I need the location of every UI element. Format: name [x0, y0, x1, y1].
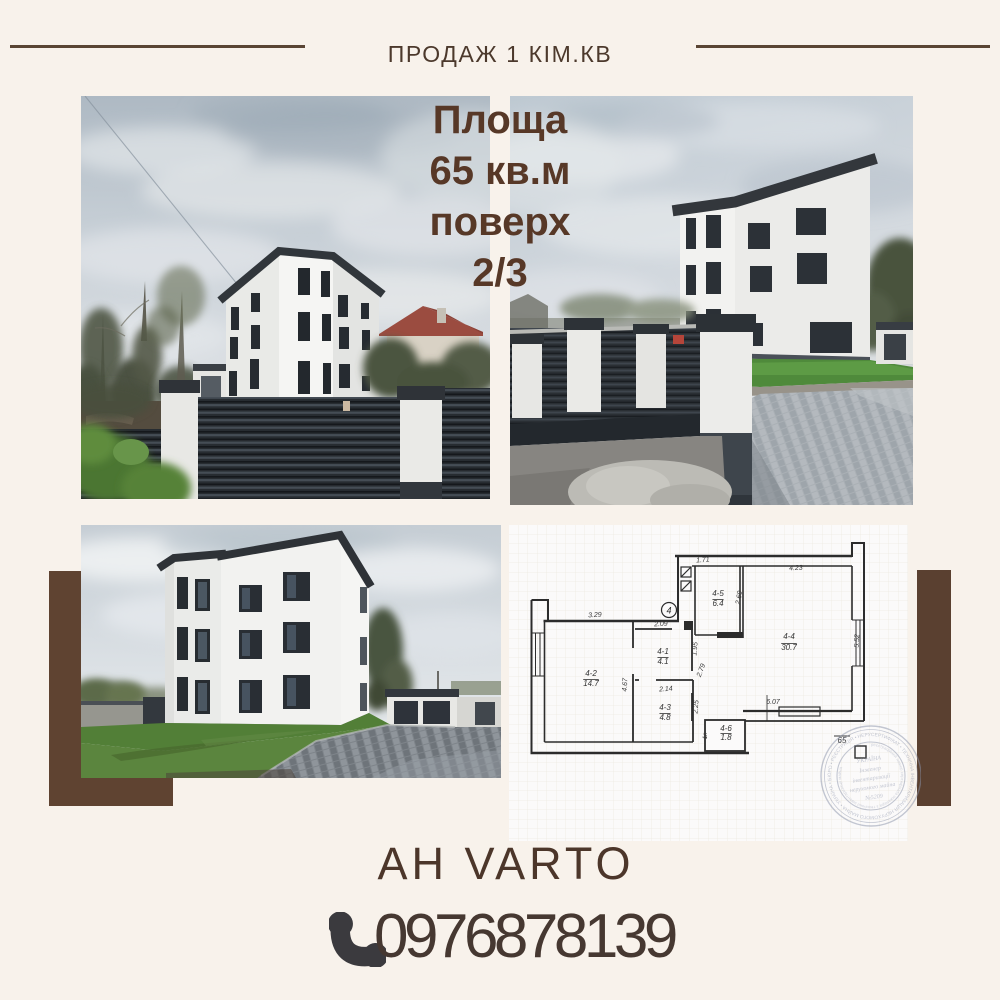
svg-text:3.29: 3.29 — [588, 612, 602, 620]
svg-text:2.25: 2.25 — [692, 700, 700, 715]
svg-text:4-1: 4-1 — [657, 647, 669, 656]
svg-text:14.7: 14.7 — [583, 679, 599, 688]
svg-text:6.4: 6.4 — [712, 599, 724, 608]
svg-text:1.95: 1.95 — [691, 642, 699, 656]
svg-text:4.1: 4.1 — [657, 657, 668, 666]
svg-text:4-4: 4-4 — [783, 632, 795, 641]
svg-text:30.7: 30.7 — [781, 643, 797, 652]
svg-text:4.67: 4.67 — [622, 677, 630, 692]
svg-text:4-2: 4-2 — [585, 669, 597, 678]
svg-text:1.8: 1.8 — [720, 733, 732, 742]
svg-text:1.71: 1.71 — [696, 557, 710, 565]
svg-text:6.07: 6.07 — [766, 699, 781, 706]
svg-text:2.09: 2.09 — [653, 621, 668, 629]
svg-text:4-6: 4-6 — [720, 724, 732, 733]
svg-text:4: 4 — [666, 606, 671, 616]
svg-text:4-5: 4-5 — [712, 589, 724, 598]
svg-text:4.8: 4.8 — [659, 713, 671, 722]
svg-text:2.14: 2.14 — [658, 686, 673, 694]
svg-text:4-3: 4-3 — [659, 703, 671, 712]
svg-text:5.52: 5.52 — [854, 634, 861, 648]
svg-text:4.23: 4.23 — [789, 565, 803, 573]
